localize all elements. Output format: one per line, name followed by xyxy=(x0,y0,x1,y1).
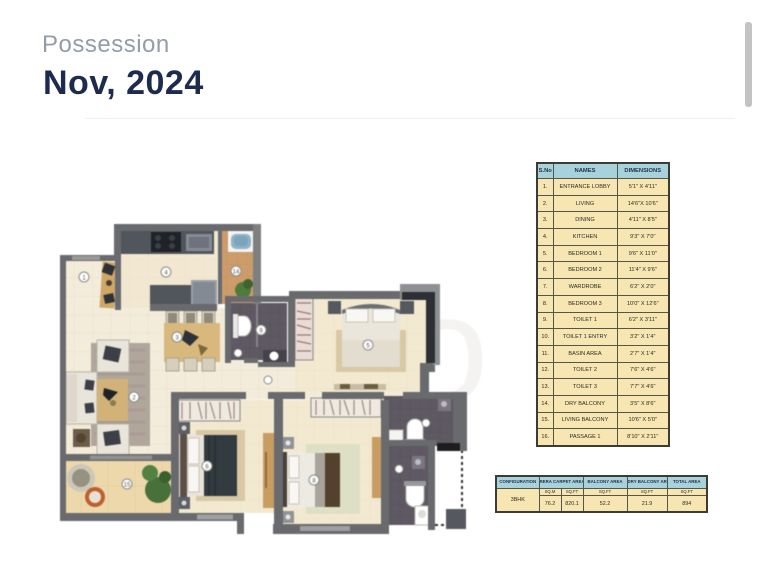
svg-text:14: 14 xyxy=(233,270,240,276)
svg-text:15: 15 xyxy=(124,483,131,489)
